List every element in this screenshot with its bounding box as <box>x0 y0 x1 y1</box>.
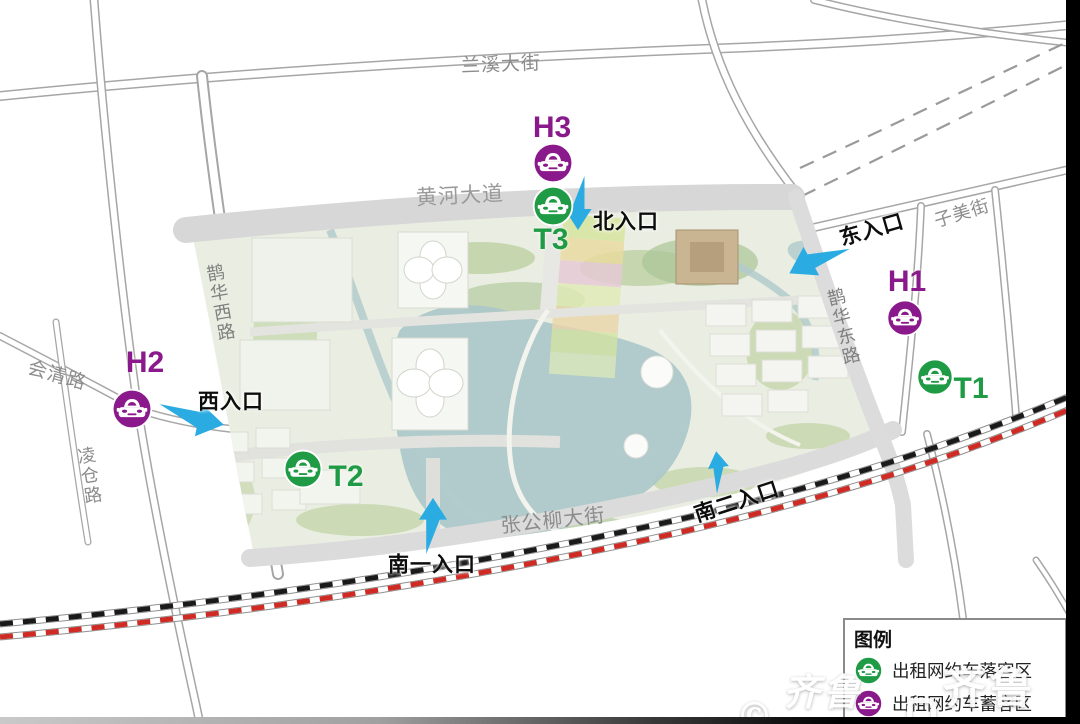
marker-label-H2: H2 <box>126 348 164 378</box>
street-label-lanxi: 兰溪大街 <box>461 54 542 76</box>
entrance-label-north: 北入口 <box>593 212 659 233</box>
car-front-icon <box>532 185 574 227</box>
legend-row-taxi: 出租网约车落客区 <box>854 656 1056 685</box>
marker-H1 <box>886 299 924 337</box>
marker-T1 <box>916 358 954 396</box>
marker-H3 <box>532 142 574 184</box>
legend-row-hailing: 出租网约车蓄客区 <box>854 689 1056 718</box>
hailing-dropoff-icon <box>854 689 883 718</box>
access-map: 兰溪大街 黄河大道 子美街 鹊华西路 鹊华东路 会清路 凌仓路 张公柳大街 北入… <box>0 0 1080 724</box>
marker-label-T3: T3 <box>533 225 568 255</box>
car-front-icon <box>532 142 574 184</box>
right-black-border <box>1066 0 1080 724</box>
car-front-icon <box>111 388 153 430</box>
marker-label-T2: T2 <box>328 462 363 492</box>
car-front-icon <box>886 299 924 337</box>
marker-T2 <box>283 449 323 489</box>
legend-title: 图例 <box>854 625 1056 652</box>
taxi-dropoff-icon <box>854 656 883 685</box>
legend-box: 图例 出租网约车落客区 出租网约车蓄客区 <box>843 618 1067 719</box>
marker-label-T1: T1 <box>953 374 988 404</box>
entrance-label-south1: 南一入口 <box>388 555 476 576</box>
marker-T3 <box>532 185 574 227</box>
legend-label-hailing: 出租网约车蓄客区 <box>892 691 1032 716</box>
entrance-label-west: 西入口 <box>198 392 264 413</box>
car-front-icon <box>916 358 954 396</box>
marker-H2 <box>111 388 153 430</box>
planned-road-dashed <box>800 36 1080 168</box>
bottom-border <box>0 717 1080 724</box>
marker-label-H3: H3 <box>533 113 571 143</box>
legend-label-taxi: 出租网约车落客区 <box>892 658 1032 683</box>
car-front-icon <box>283 449 323 489</box>
marker-label-H1: H1 <box>888 267 926 297</box>
street-label-huanghe: 黄河大道 <box>416 183 505 209</box>
